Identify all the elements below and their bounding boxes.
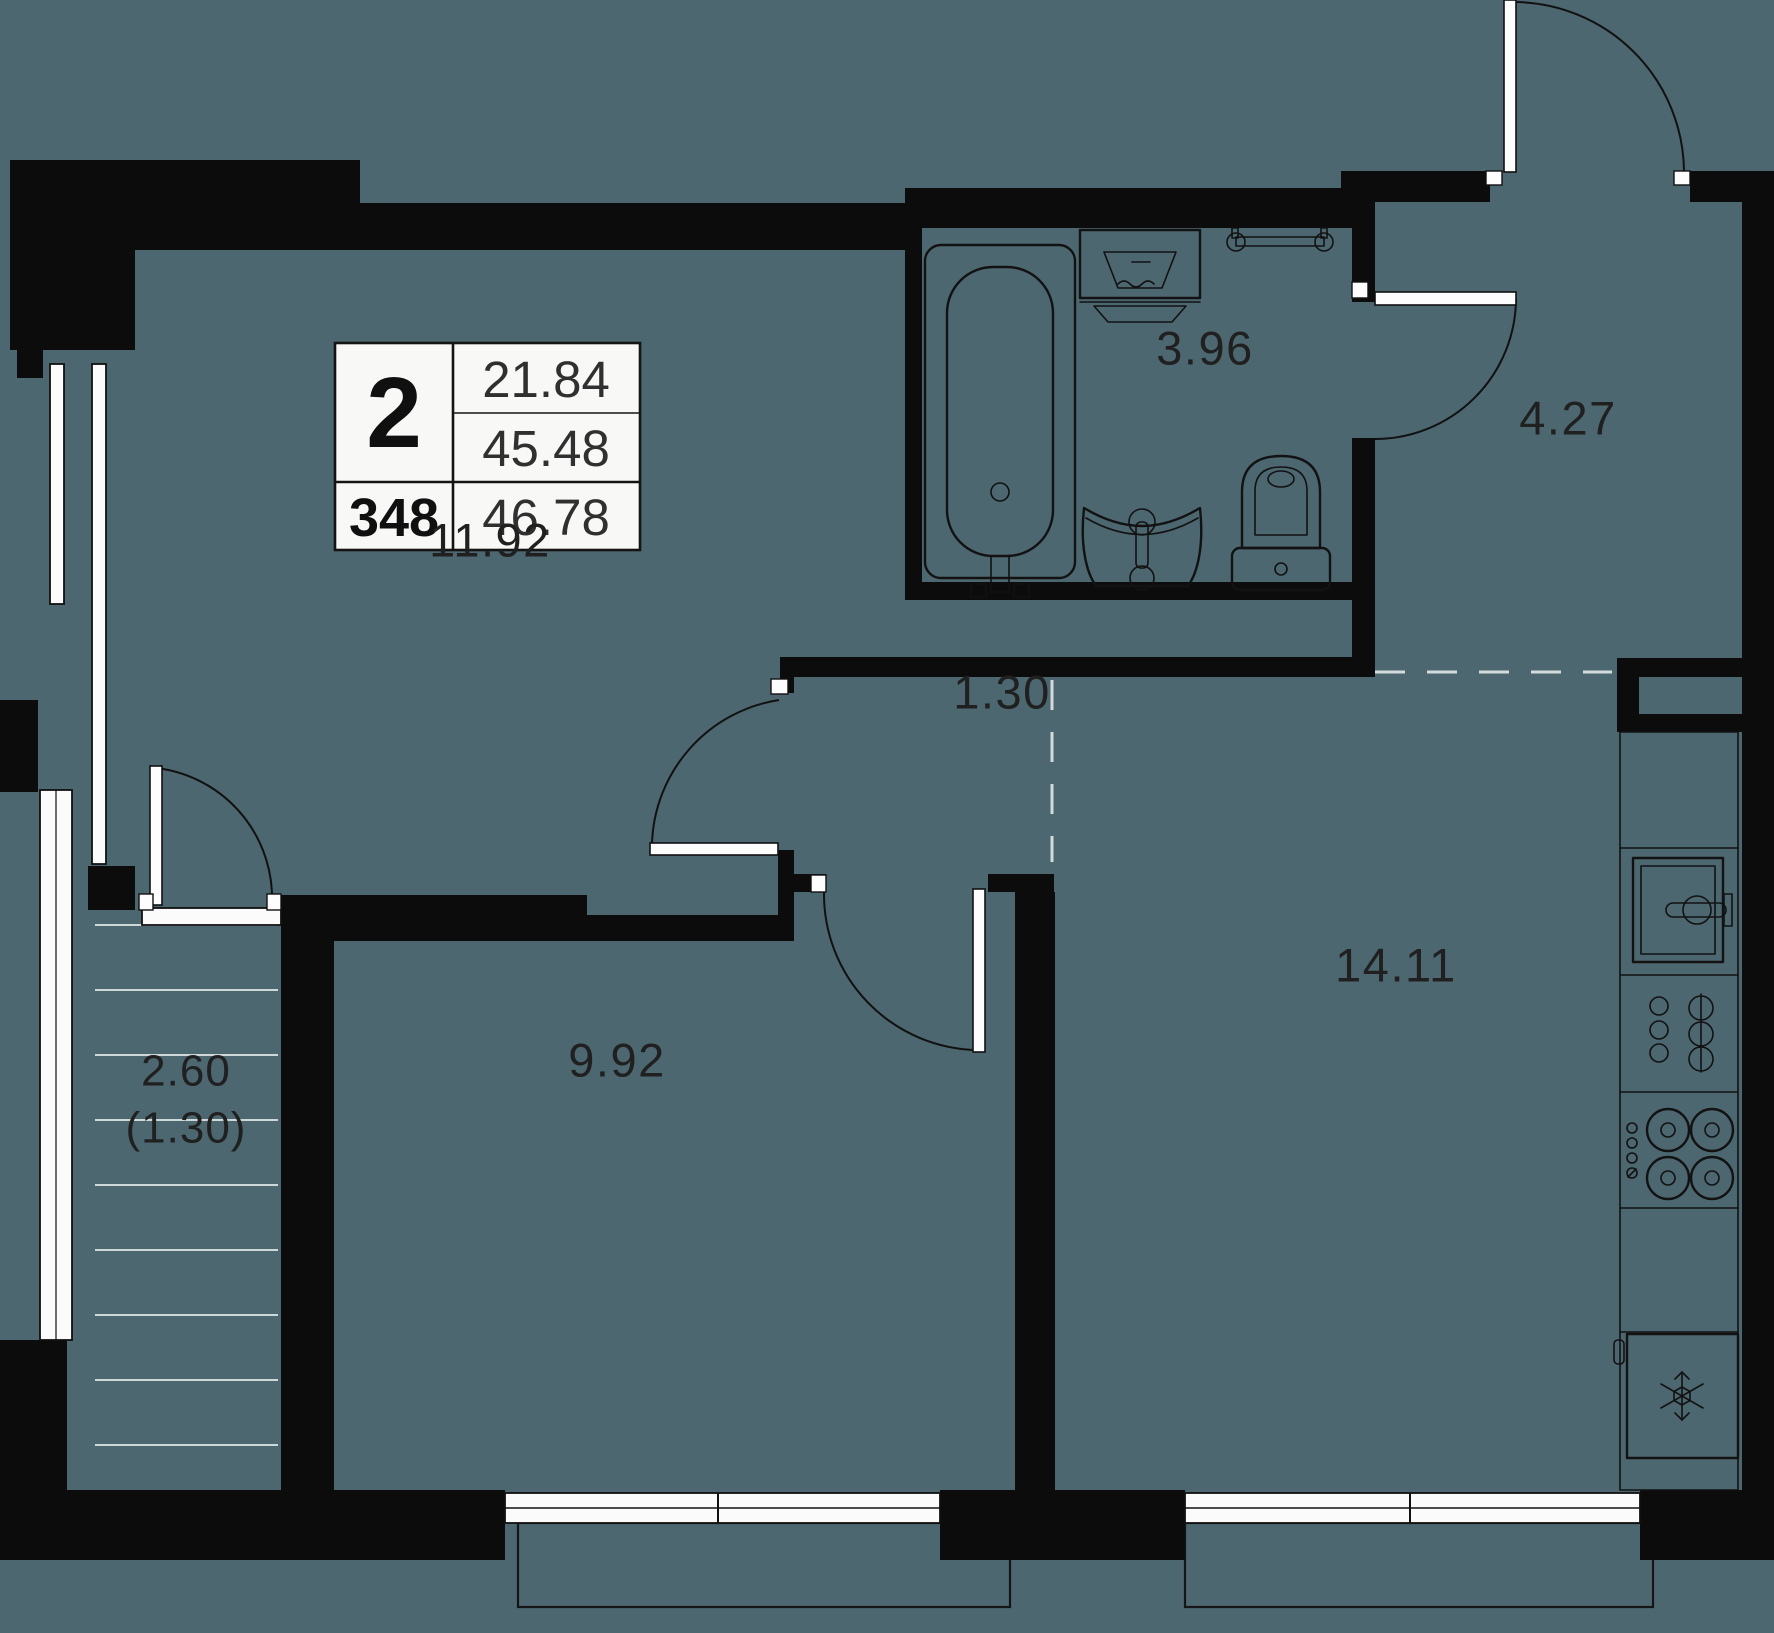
room-label-bedroom: 9.92 <box>568 1033 665 1086</box>
room-label-corridor: 1.30 <box>953 665 1050 718</box>
living-window-outer <box>50 364 64 604</box>
room-label-kitchen: 14.11 <box>1335 938 1457 991</box>
legend-unit-number: 348 <box>349 488 439 548</box>
room-label-bathroom: 3.96 <box>1156 321 1253 374</box>
floor-plan: 2 348 21.84 45.48 46.78 11.92 3.96 4.27 … <box>0 0 1774 1633</box>
floor-plan-canvas: 2 348 21.84 45.48 46.78 11.92 3.96 4.27 … <box>0 0 1774 1633</box>
living-window-inner <box>92 364 106 864</box>
legend-rooms-count: 2 <box>366 357 422 469</box>
balcony-threshold <box>142 908 281 925</box>
bedroom-window <box>505 1493 940 1523</box>
room-label-balcony-counted: (1.30) <box>126 1103 247 1152</box>
room-label-living: 11.92 <box>429 513 551 566</box>
legend-living-area: 21.84 <box>482 351 610 408</box>
room-label-balcony-area: 2.60 <box>141 1046 231 1095</box>
legend-apartment-area: 45.48 <box>482 420 610 477</box>
balcony-window <box>40 790 72 1340</box>
room-label-hallway: 4.27 <box>1519 391 1616 444</box>
vent-shaft-inset <box>1639 677 1742 714</box>
kitchen-window <box>1185 1493 1640 1523</box>
